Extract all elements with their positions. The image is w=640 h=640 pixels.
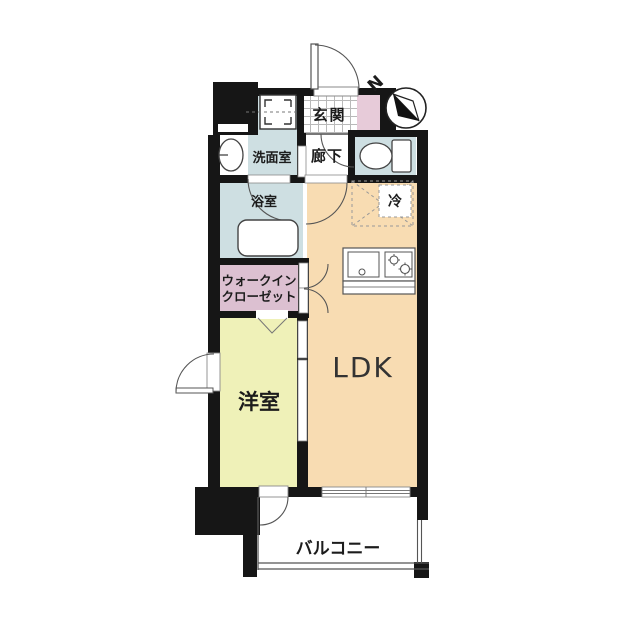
sliding-panel-2	[298, 360, 307, 441]
toilet-tank-icon	[392, 140, 411, 172]
bedroom-side-door-leaf	[176, 388, 213, 393]
wic-fold-door-mark	[258, 318, 287, 333]
kitchen-stove-icon	[385, 252, 412, 277]
entry-door-leaf	[311, 44, 318, 89]
ldk-label: LDK	[330, 350, 396, 384]
wic-bedroom-opening	[256, 310, 288, 319]
bathtub-icon	[238, 220, 298, 256]
fridge-label: 冷	[381, 191, 409, 211]
entry-door-arc	[315, 45, 359, 89]
balcony-label: バルコニー	[290, 535, 386, 557]
wic-door-leaf-top	[299, 263, 308, 288]
balcony-door-arc	[260, 497, 288, 525]
ldk-doorway	[305, 175, 347, 183]
bathroom-doorway	[248, 175, 290, 183]
kitchen-sink-icon	[348, 252, 379, 277]
bedroom-label: 洋室	[234, 388, 284, 414]
bathroom-label: 浴室	[244, 192, 284, 209]
wic-door-leaf-bottom	[299, 288, 308, 313]
washroom-label: 洗面室	[246, 148, 298, 165]
ldk-door-arc	[306, 183, 347, 224]
hallway-label: 廊下	[303, 145, 351, 165]
balcony-door	[259, 486, 288, 497]
toilet-bowl-icon	[360, 143, 392, 169]
kitchen-counter-front	[343, 281, 415, 294]
bedroom-side-opening	[207, 353, 220, 391]
wic-label: ウォークインクローゼット	[218, 272, 300, 306]
floor-plan: 玄関 廊下 洗面室 浴室 ウォークインクローゼット LDK 洋室 バルコニー 冷…	[0, 0, 640, 640]
genkan-label: 玄関	[302, 104, 357, 124]
entry-doorway	[314, 87, 358, 96]
sliding-panel-1	[298, 321, 307, 358]
duct-vent-slot	[218, 124, 248, 132]
